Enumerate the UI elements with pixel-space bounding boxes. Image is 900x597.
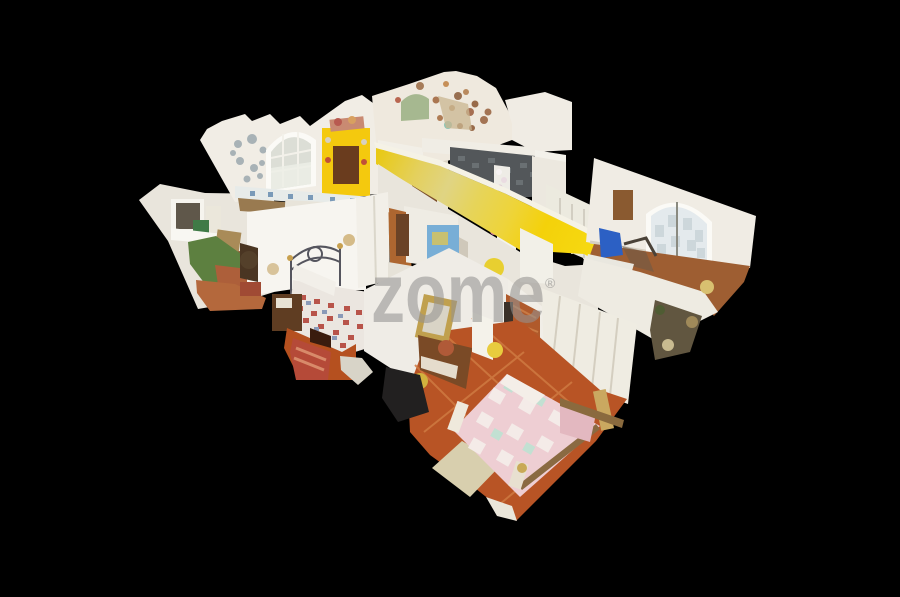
svg-text:zome: zome <box>371 246 545 340</box>
svg-text:®: ® <box>545 275 556 291</box>
